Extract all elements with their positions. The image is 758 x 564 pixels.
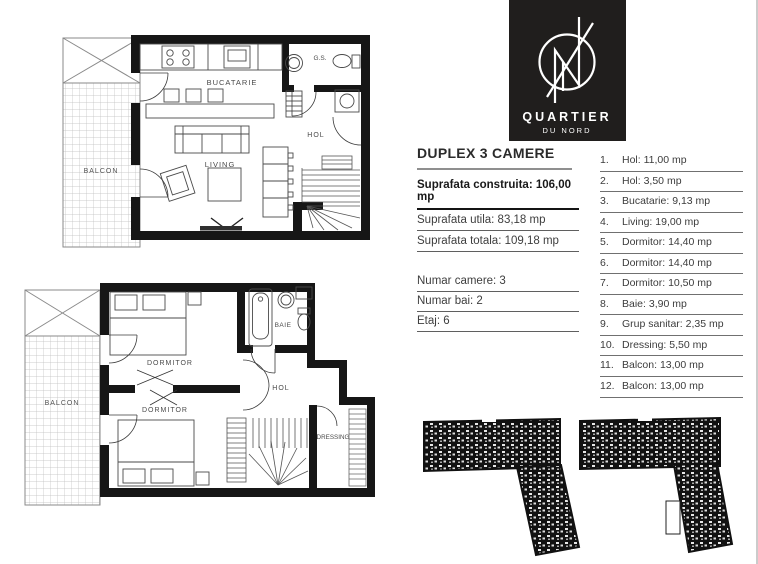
room-number: 5. <box>600 237 622 249</box>
living-furniture <box>160 126 293 217</box>
room-text: Baie: 3,90 mp <box>622 299 687 311</box>
room-area-list: 1.Hol: 11,00 mp 2.Hol: 3,50 mp 3.Bucatar… <box>600 151 743 398</box>
dormitor1-label: DORMITOR <box>147 360 193 367</box>
building-plan-left <box>424 416 579 555</box>
area-total-row: Suprafata totala: 109,18 mp <box>417 231 579 252</box>
room-number: 10. <box>600 340 622 352</box>
room-text: Hol: 3,50 mp <box>622 176 682 188</box>
list-item: 3.Bucatarie: 9,13 mp <box>600 192 743 213</box>
building-site-plans <box>420 408 750 560</box>
list-item: 1.Hol: 11,00 mp <box>600 151 743 172</box>
apartment-meta: Numar camere: 3 Numar bai: 2 Etaj: 6 <box>417 272 579 332</box>
room-text: Living: 19,00 mp <box>622 217 699 229</box>
upper-balcon-label: BALCON <box>84 168 119 175</box>
dressing-room: DRESSING <box>317 409 366 486</box>
upper-stairs <box>302 156 360 230</box>
room-number: 1. <box>600 155 622 167</box>
dressing-label: DRESSING <box>317 434 350 441</box>
room-number: 9. <box>600 319 622 331</box>
list-item: 8.Baie: 3,90 mp <box>600 295 743 316</box>
apartment-details: DUPLEX 3 CAMERE Suprafata construita: 10… <box>417 146 579 332</box>
upper-hol-label: HOL <box>307 132 324 139</box>
lower-balcony: BALCON <box>25 290 100 505</box>
brand-logo-monogram: QUARTIER DU NORD <box>509 0 626 141</box>
room-number: 11. <box>600 360 622 372</box>
room-number: 7. <box>600 278 622 290</box>
room-text: Dormitor: 14,40 mp <box>622 258 712 270</box>
room-text: Bucatarie: 9,13 mp <box>622 196 710 208</box>
upper-walls <box>131 35 370 240</box>
lower-walls <box>100 283 375 497</box>
bathroom-fixtures <box>249 287 312 346</box>
room-text: Balcon: 13,00 mp <box>622 360 704 372</box>
brand-logo: QUARTIER DU NORD <box>509 0 626 141</box>
brand-name: QUARTIER <box>522 110 611 124</box>
sliding-door-marks <box>137 370 177 405</box>
upper-entry-door <box>200 218 243 231</box>
rooms-count-row: Numar camere: 3 <box>417 272 579 292</box>
floor-row: Etaj: 6 <box>417 312 579 332</box>
room-text: Hol: 11,00 mp <box>622 155 687 167</box>
room-text: Balcon: 13,00 mp <box>622 381 704 393</box>
bucatarie-label: BUCATARIE <box>207 78 258 87</box>
floorplan-brochure-page: BALCON <box>0 0 758 564</box>
room-number: 4. <box>600 217 622 229</box>
brand-subname: DU NORD <box>543 126 592 135</box>
list-item: 2.Hol: 3,50 mp <box>600 172 743 193</box>
lower-stairs <box>227 418 308 485</box>
baie-label: BAIE <box>275 322 292 329</box>
lower-hol-label: HOL <box>272 385 289 392</box>
baths-count-row: Numar bai: 2 <box>417 292 579 312</box>
living-label: LIVING <box>205 160 236 169</box>
room-number: 6. <box>600 258 622 270</box>
list-item: 10.Dressing: 5,50 mp <box>600 336 743 357</box>
room-number: 8. <box>600 299 622 311</box>
list-item: 11.Balcon: 13,00 mp <box>600 356 743 377</box>
room-text: Grup sanitar: 2,35 mp <box>622 319 724 331</box>
page-title: DUPLEX 3 CAMERE <box>417 146 572 170</box>
dormitor2-label: DORMITOR <box>142 407 188 414</box>
room-text: Dressing: 5,50 mp <box>622 340 707 352</box>
lower-balcon-label: BALCON <box>45 400 80 407</box>
list-item: 9.Grup sanitar: 2,35 mp <box>600 315 743 336</box>
area-usable-row: Suprafata utila: 83,18 mp <box>417 210 579 231</box>
room-number: 12. <box>600 381 622 393</box>
upper-floor-plan: BALCON <box>30 25 375 257</box>
building-plan-right <box>580 415 732 552</box>
room-text: Dormitor: 10,50 mp <box>622 278 712 290</box>
room-number: 3. <box>600 196 622 208</box>
list-item: 4.Living: 19,00 mp <box>600 213 743 234</box>
list-item: 12.Balcon: 13,00 mp <box>600 377 743 398</box>
list-item: 7.Dormitor: 10,50 mp <box>600 274 743 295</box>
room-number: 2. <box>600 176 622 188</box>
upper-balcony: BALCON <box>63 38 140 247</box>
area-built-row: Suprafata construita: 106,00 mp <box>417 175 579 209</box>
room-text: Dormitor: 14,40 mp <box>622 237 712 249</box>
gs-label: G.S. <box>313 55 326 62</box>
lower-floor-plan: BALCON <box>15 278 380 510</box>
list-item: 5.Dormitor: 14,40 mp <box>600 233 743 254</box>
list-item: 6.Dormitor: 14,40 mp <box>600 254 743 275</box>
